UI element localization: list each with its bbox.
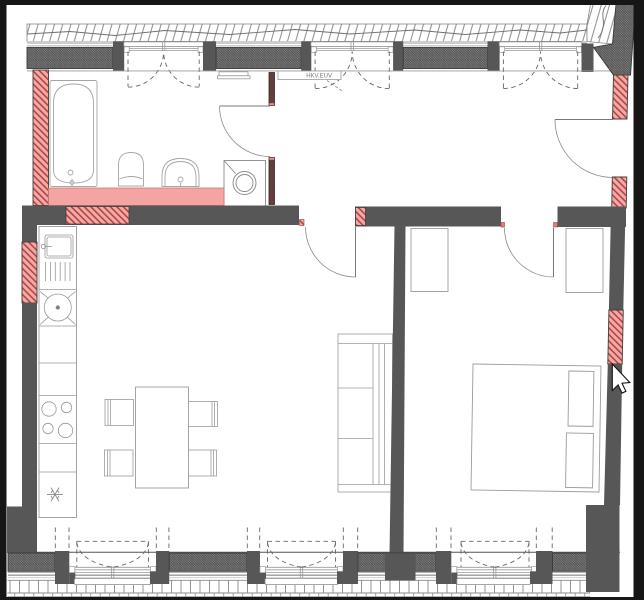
svg-text:HKV.EUV: HKV.EUV <box>306 73 332 79</box>
